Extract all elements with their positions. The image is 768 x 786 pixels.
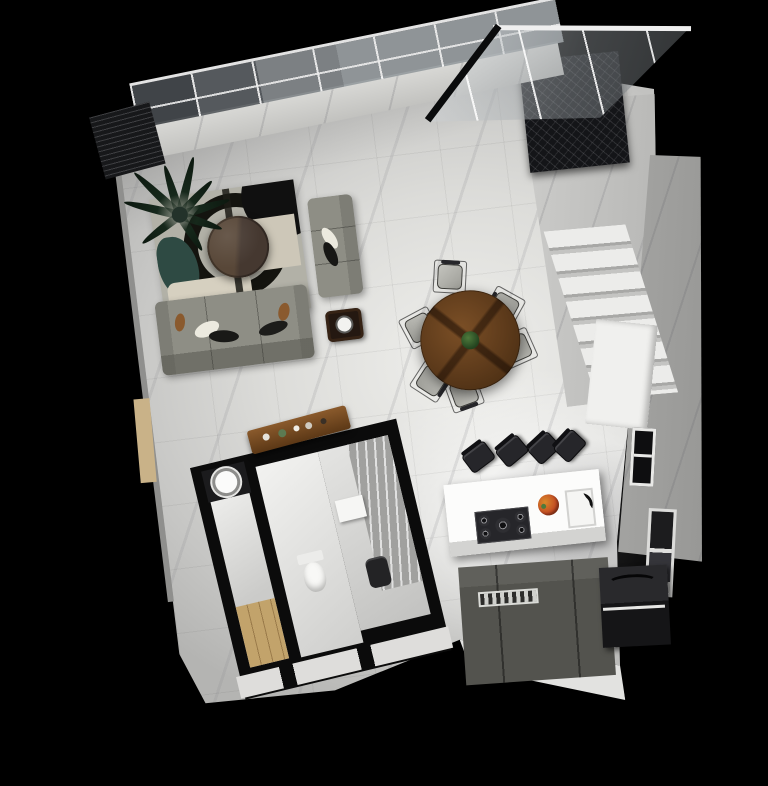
floor-plant <box>135 170 224 259</box>
counter-sink-grill <box>478 588 539 607</box>
toilet-bowl <box>301 560 329 594</box>
sofa-pillow-black <box>209 330 239 343</box>
base-cabinets <box>458 557 616 685</box>
sofa-pillow-rust <box>277 302 291 322</box>
fruit-bowl <box>537 493 560 516</box>
console-decor <box>262 433 271 442</box>
black-appliance <box>599 564 671 647</box>
sofa-pillow-rust <box>174 313 186 332</box>
plant-centerpiece <box>460 330 480 350</box>
window <box>629 428 656 487</box>
console-decor <box>320 417 327 424</box>
gas-cooktop <box>474 507 531 544</box>
render-canvas <box>0 0 768 786</box>
side-table <box>325 307 365 342</box>
apartment-group <box>108 4 732 745</box>
console-decor <box>277 428 287 438</box>
bathroom-wood-floor <box>236 598 289 668</box>
toilet <box>296 550 331 597</box>
decor-bowl <box>334 314 354 334</box>
console-decor <box>304 421 313 430</box>
shower-shelf <box>335 495 367 523</box>
sofa-pillow-black <box>257 318 289 339</box>
glass-panel-white-edge <box>493 25 691 31</box>
console-decor <box>293 425 300 432</box>
stair-side-wall <box>585 319 658 430</box>
dining-chair <box>437 264 463 290</box>
